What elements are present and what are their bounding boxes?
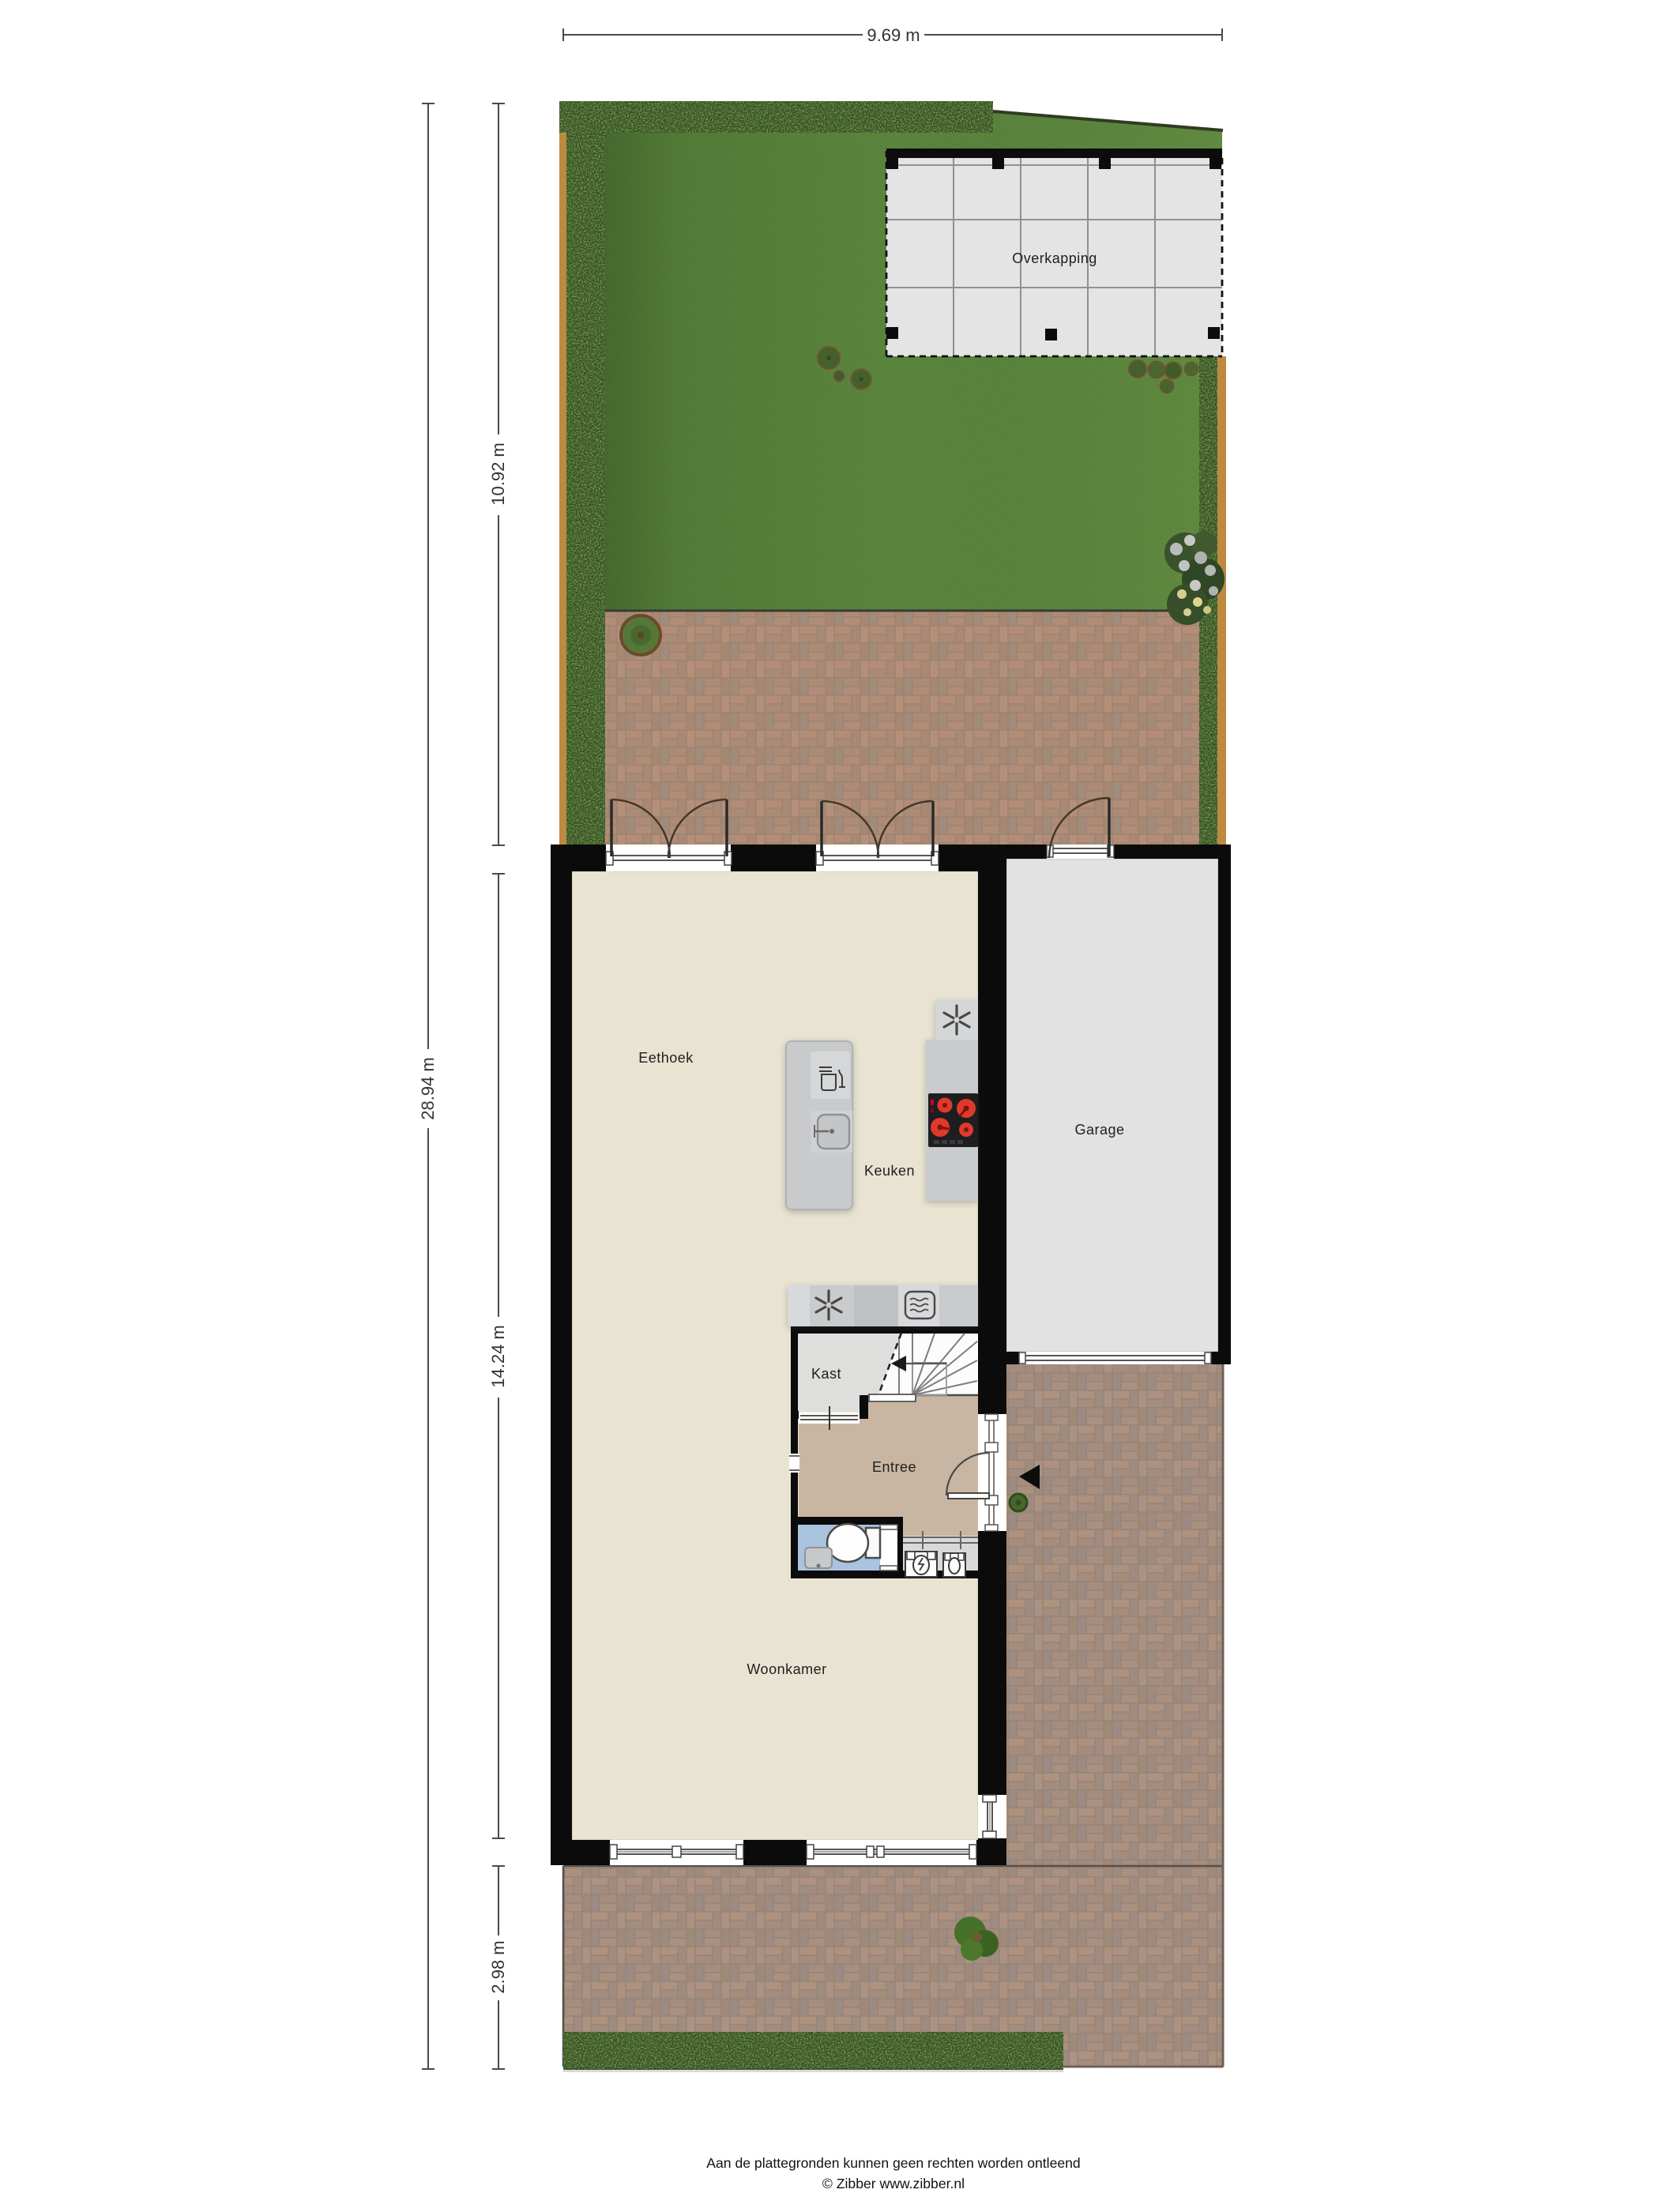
svg-text:2.98 m: 2.98 m — [488, 1940, 508, 1993]
svg-text:Eethoek: Eethoek — [638, 1050, 694, 1066]
svg-text:14.24 m: 14.24 m — [488, 1325, 508, 1388]
svg-text:28.94 m: 28.94 m — [418, 1057, 438, 1120]
svg-text:Woonkamer: Woonkamer — [747, 1661, 826, 1677]
svg-text:9.69 m: 9.69 m — [867, 25, 920, 45]
svg-text:© Zibber www.zibber.nl: © Zibber www.zibber.nl — [822, 2176, 965, 2191]
svg-text:Garage: Garage — [1074, 1122, 1124, 1138]
svg-text:Entree: Entree — [872, 1459, 916, 1475]
svg-text:Kast: Kast — [811, 1366, 841, 1382]
svg-text:Aan de plattegronden kunnen ge: Aan de plattegronden kunnen geen rechten… — [706, 2155, 1080, 2171]
svg-text:Overkapping: Overkapping — [1012, 250, 1097, 266]
svg-text:10.92 m: 10.92 m — [488, 442, 508, 506]
svg-text:Keuken: Keuken — [864, 1163, 915, 1179]
